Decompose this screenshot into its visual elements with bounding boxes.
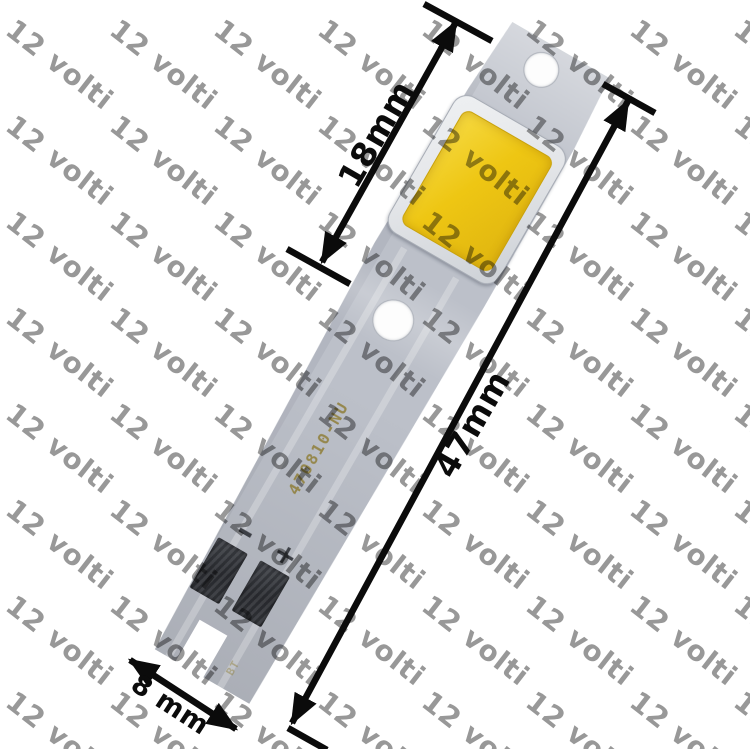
tick-47mm-bottom <box>288 728 327 749</box>
tick-47mm-top <box>603 84 655 113</box>
tick-18mm-bottom <box>287 249 350 284</box>
tick-18mm-top <box>424 4 492 41</box>
product-photo: 470810-NU BT – + 12 volti12 volti12 volt… <box>0 0 750 749</box>
